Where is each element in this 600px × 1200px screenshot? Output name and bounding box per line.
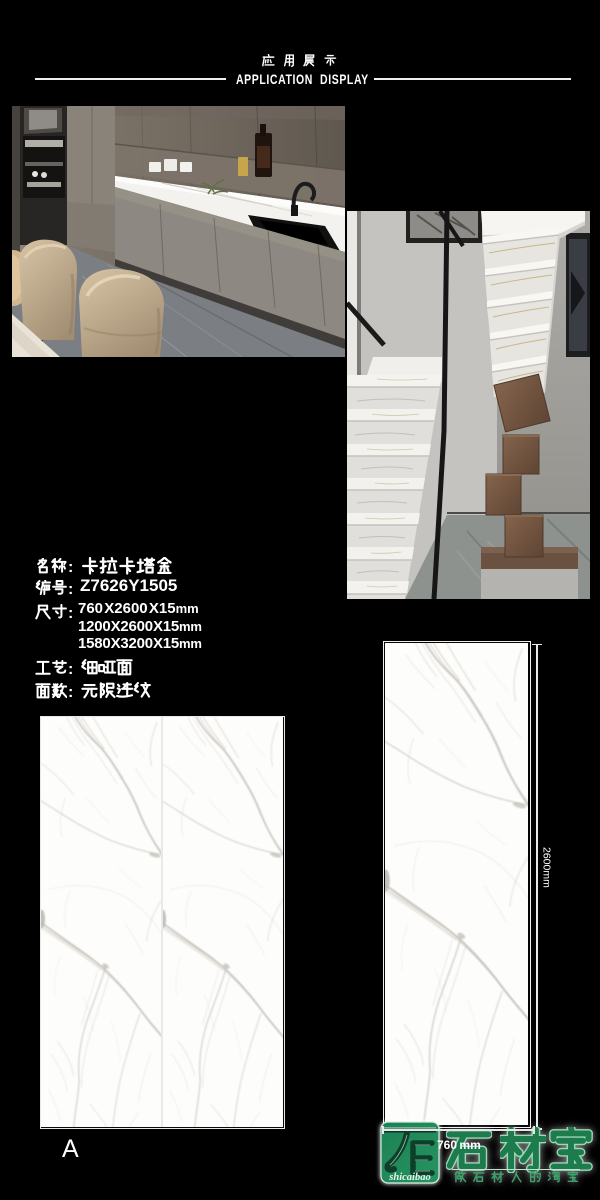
svg-text:shicaibao: shicaibao [388,1172,430,1183]
